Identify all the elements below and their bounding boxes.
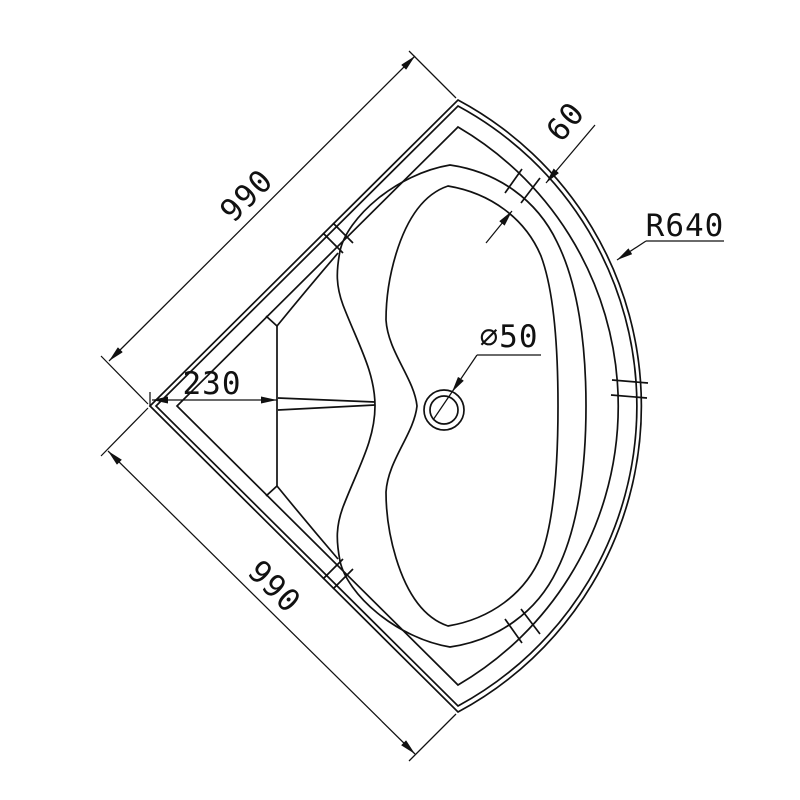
dim-radius-label: R640 bbox=[646, 208, 725, 244]
tray-outline-outer-edge bbox=[150, 100, 641, 712]
basin-outer-contour bbox=[337, 165, 586, 647]
dimension-diameter-50: ⌀50 bbox=[433, 319, 541, 420]
corner-seat bbox=[266, 253, 375, 559]
extension-line bbox=[101, 51, 456, 404]
basin-floor-contour bbox=[386, 186, 558, 626]
leader-line bbox=[452, 355, 477, 392]
seat-top-chamfer bbox=[266, 316, 277, 326]
dimension-line bbox=[108, 451, 415, 754]
dim-990-bottom-label: 990 bbox=[240, 553, 307, 620]
leader-line bbox=[617, 241, 646, 260]
dimension-radius-640: R640 bbox=[617, 208, 724, 260]
seat-bottom-chamfer bbox=[266, 486, 277, 496]
dim-230-label: 230 bbox=[183, 366, 242, 402]
seat-back-edge-lower bbox=[277, 486, 338, 559]
inner-arrow-line bbox=[486, 211, 512, 243]
seat-back-edge-upper bbox=[277, 253, 338, 326]
dimension-990-top: 990 bbox=[101, 51, 456, 404]
dimension-990-bottom: 990 bbox=[101, 408, 456, 761]
seat-center-ridge-lines bbox=[278, 398, 375, 410]
drain-inner-circle bbox=[430, 396, 458, 424]
technical-drawing-canvas: 990 990 230 60 ⌀50 R640 bbox=[0, 0, 800, 800]
drain bbox=[424, 390, 464, 430]
dim-60-label: 60 bbox=[540, 95, 593, 148]
tray-outer-outline bbox=[150, 100, 641, 712]
shower-tray-plan-drawing: 990 990 230 60 ⌀50 R640 bbox=[0, 0, 800, 800]
dim-990-top-label: 990 bbox=[213, 162, 280, 229]
dimension-line bbox=[109, 56, 415, 361]
dim-diameter-label: ⌀50 bbox=[480, 319, 539, 355]
